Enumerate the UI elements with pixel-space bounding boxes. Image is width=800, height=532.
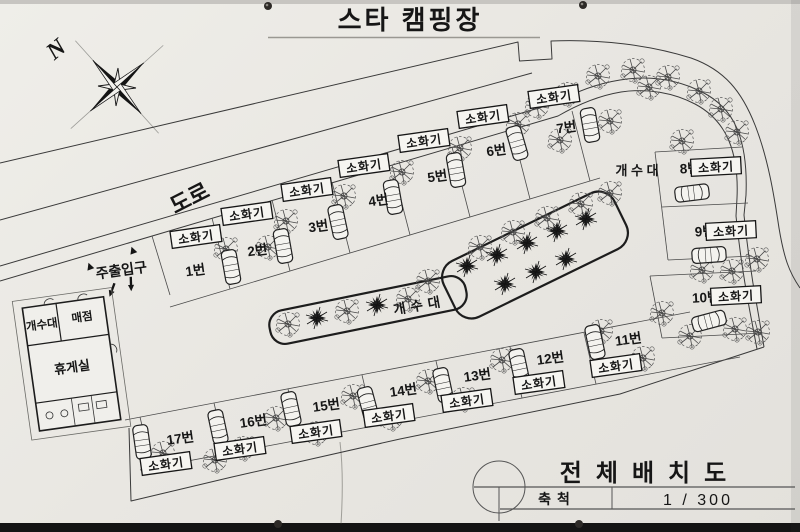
site-label: 7번 <box>555 119 577 137</box>
entrance-arrow-icon <box>128 277 135 292</box>
sign-right-shadow <box>791 0 800 532</box>
titleblock-title: 전체배치도 <box>560 460 740 487</box>
road-tick-icon <box>128 246 137 255</box>
entrance-label: 주출입구 <box>95 259 148 282</box>
fire-extinguisher-box: 소화기 <box>706 221 757 241</box>
sign-crease <box>340 442 342 524</box>
site-plan-drawing: 스타 캠핑장 N <box>0 0 800 532</box>
compass-north-label: N <box>41 33 73 66</box>
fire-extinguisher-box: 소화기 <box>338 154 390 178</box>
site-label: 11번 <box>614 330 643 349</box>
fire-extinguisher-box: 소화기 <box>457 105 509 129</box>
road-tick-icon <box>85 262 94 271</box>
svg-text:소화기: 소화기 <box>718 288 755 305</box>
sign-top-edge <box>0 0 800 4</box>
drawing-title-block: 전체배치도 축척 1 / 300 <box>473 460 795 521</box>
site-label: 5번 <box>426 168 448 186</box>
fire-extinguisher-box: 소화기 <box>711 286 762 306</box>
site-label: 3번 <box>307 218 329 236</box>
inner-fence-inner <box>0 91 757 349</box>
sign-bottom-edge <box>0 523 800 532</box>
svg-text:소화기: 소화기 <box>698 159 735 176</box>
fire-extinguisher-box: 소화기 <box>691 157 742 177</box>
site-label: 1번 <box>184 262 206 280</box>
site-label: 17번 <box>166 429 195 448</box>
titleblock-scale-label: 축척 <box>538 491 576 507</box>
fire-extinguisher-box: 소화기 <box>528 85 580 109</box>
fire-extinguisher-box: 소화기 <box>398 129 450 153</box>
site-label: 4번 <box>367 192 389 210</box>
site-label: 14번 <box>389 381 418 400</box>
titleblock-scale-value: 1 / 300 <box>663 492 733 509</box>
road-label: 도로 <box>166 178 213 219</box>
site-label: 6번 <box>485 142 507 160</box>
site-label: 2번 <box>246 242 268 260</box>
sign-photo: 스타 캠핑장 N <box>0 0 800 532</box>
page-title: 스타 캠핑장 <box>338 5 483 35</box>
svg-text:소화기: 소화기 <box>713 223 750 240</box>
fire-extinguisher-box: 소화기 <box>221 202 273 226</box>
sink-upper-label: 개 수 대 <box>615 163 658 178</box>
compass-rose: N <box>29 0 205 175</box>
service-building: 개수대 매점 휴게실 <box>12 288 131 441</box>
central-planting-strip <box>267 185 634 346</box>
site-label: 16번 <box>239 412 268 431</box>
road-upper-edge <box>0 73 532 220</box>
site-label: 15번 <box>312 396 341 415</box>
site-label: 13번 <box>463 366 492 385</box>
site-label: 12번 <box>536 349 565 368</box>
